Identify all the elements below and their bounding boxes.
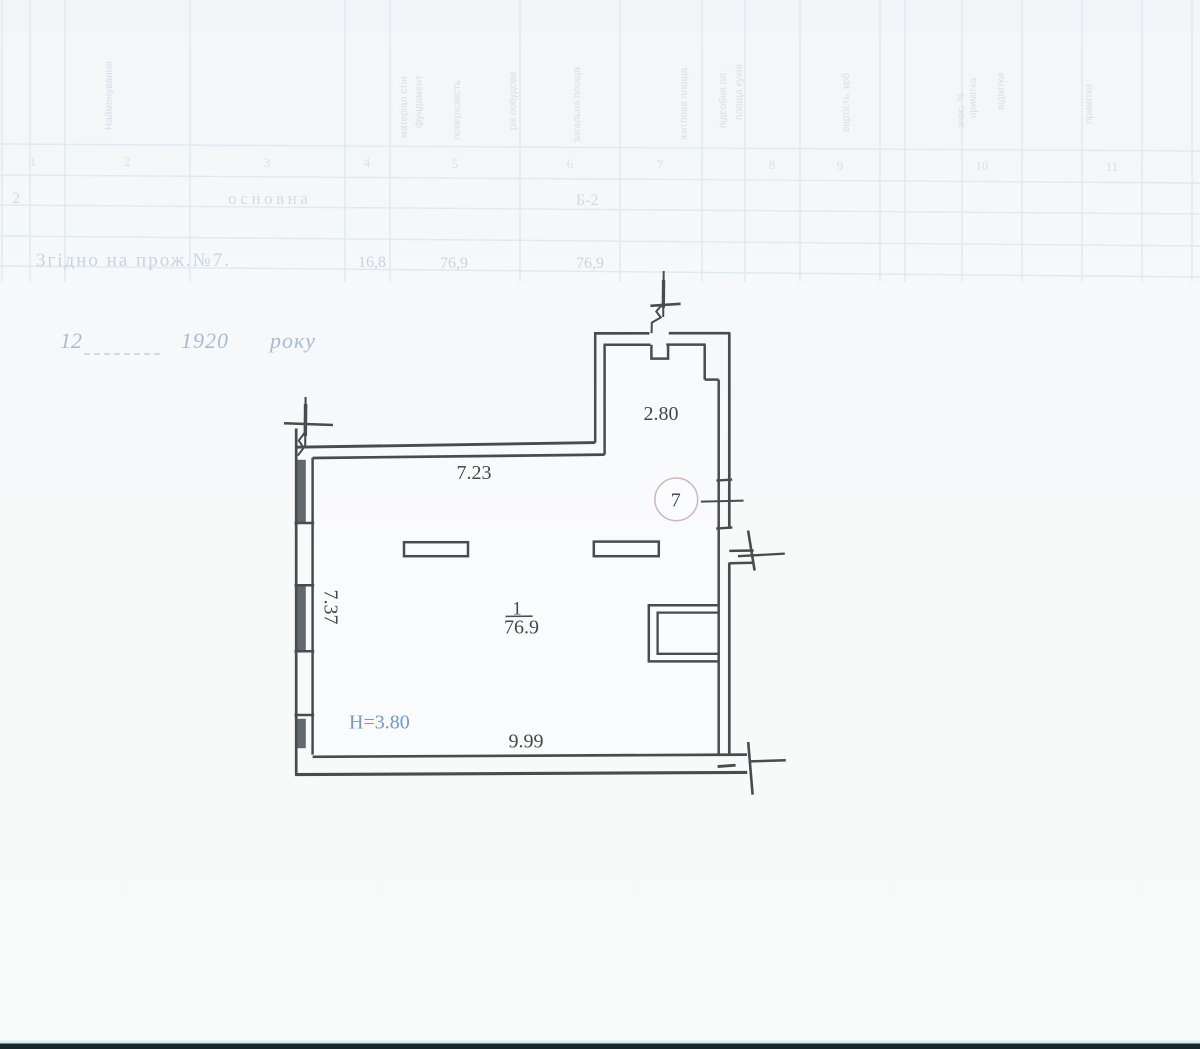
svg-text:9.99: 9.99 bbox=[509, 731, 544, 753]
svg-text:7: 7 bbox=[671, 490, 681, 512]
svg-text:Б-2: Б-2 bbox=[576, 192, 599, 209]
svg-text:10: 10 bbox=[976, 158, 989, 173]
svg-text:4: 4 bbox=[364, 155, 371, 170]
svg-text:площа кухні: площа кухні bbox=[734, 64, 745, 120]
svg-text:7: 7 bbox=[657, 157, 664, 172]
svg-text:примітки: примітки bbox=[1084, 84, 1095, 124]
svg-text:2: 2 bbox=[12, 190, 20, 207]
svg-text:Найменування: Найменування bbox=[104, 61, 115, 130]
svg-text:підсобна пл.: підсобна пл. bbox=[717, 70, 729, 128]
svg-text:вартість, крб: вартість, крб bbox=[840, 73, 852, 132]
svg-text:року: року bbox=[268, 328, 316, 353]
svg-text:житлова площа: житлова площа bbox=[679, 67, 690, 140]
svg-text:основна: основна bbox=[228, 189, 311, 208]
svg-text:6: 6 bbox=[567, 156, 574, 171]
svg-text:знос, %: знос, % bbox=[956, 93, 967, 128]
svg-text:2: 2 bbox=[124, 154, 131, 169]
svg-text:загальна площа: загальна площа bbox=[572, 67, 583, 142]
svg-text:рік побудови: рік побудови bbox=[507, 72, 519, 130]
svg-text:76.9: 76.9 bbox=[504, 617, 539, 639]
svg-text:поверховість: поверховість bbox=[452, 80, 463, 140]
svg-text:відмітки: відмітки bbox=[996, 73, 1007, 110]
svg-text:16,8: 16,8 bbox=[358, 254, 386, 271]
svg-text:фундамент: фундамент bbox=[413, 75, 425, 128]
svg-text:примітка: примітка bbox=[968, 77, 979, 118]
svg-text:матеріал стін: матеріал стін bbox=[399, 76, 410, 138]
svg-text:Згідно на прож.№7.: Згідно на прож.№7. bbox=[36, 250, 231, 271]
svg-text:1: 1 bbox=[30, 154, 37, 169]
svg-text:76,9: 76,9 bbox=[440, 255, 468, 272]
svg-text:2.80: 2.80 bbox=[644, 403, 679, 425]
svg-text:5: 5 bbox=[452, 156, 459, 171]
svg-text:12: 12 bbox=[60, 328, 82, 353]
svg-text:9: 9 bbox=[837, 158, 844, 173]
svg-text:H=3.80: H=3.80 bbox=[349, 712, 410, 734]
svg-text:76,9: 76,9 bbox=[576, 255, 604, 272]
svg-text:3: 3 bbox=[264, 155, 271, 170]
svg-text:7.23: 7.23 bbox=[457, 462, 492, 484]
svg-text:7.37: 7.37 bbox=[320, 590, 342, 625]
svg-text:11: 11 bbox=[1106, 159, 1119, 174]
svg-text:8: 8 bbox=[769, 157, 776, 172]
svg-text:1920: 1920 bbox=[181, 328, 229, 353]
